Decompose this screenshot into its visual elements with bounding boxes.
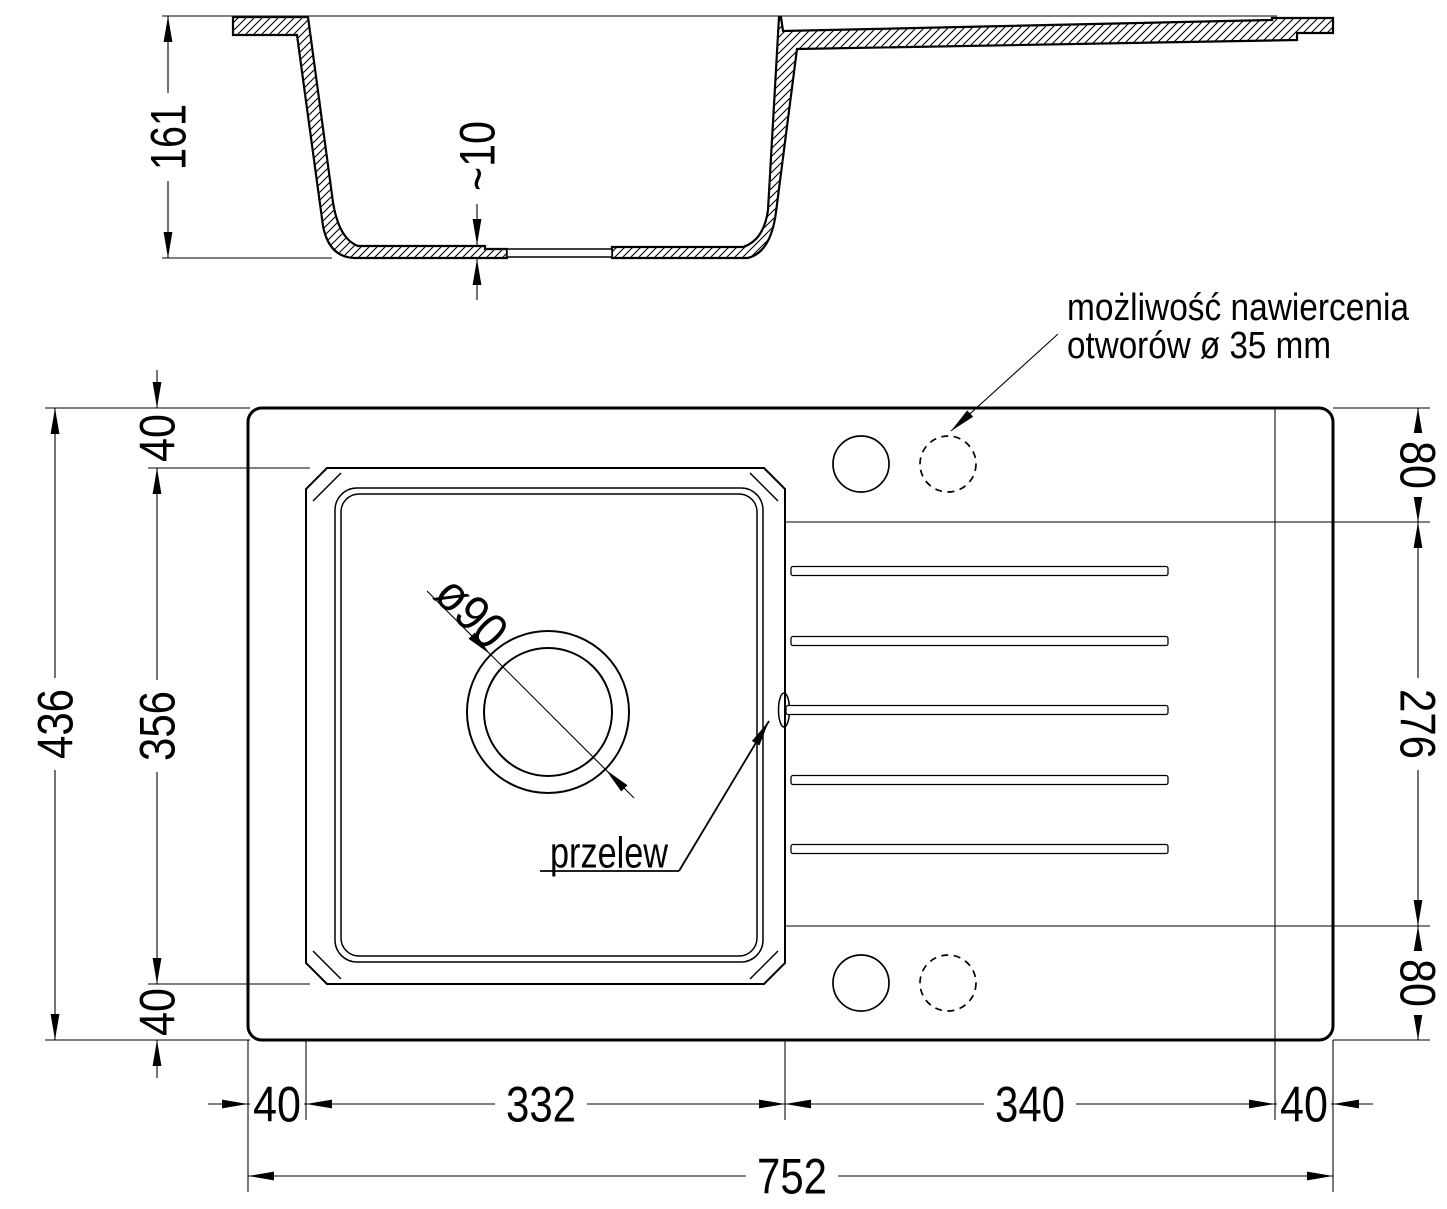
tap-hole-bottom bbox=[833, 955, 889, 1011]
dim-drain: ø90 bbox=[424, 565, 519, 660]
sink-technical-drawing: 161 ~10 bbox=[0, 0, 1447, 1209]
bowl-width-label: 332 bbox=[506, 1077, 576, 1133]
groove-1 bbox=[791, 567, 1168, 576]
drainboard-depth-label: 276 bbox=[1390, 689, 1446, 759]
drain-dim-arrow-2 bbox=[606, 770, 634, 798]
sink-outline bbox=[248, 408, 1333, 1040]
bowl-rim-inner-1 bbox=[335, 488, 763, 962]
groove-3 bbox=[786, 706, 1168, 715]
edge-bottom-label: 40 bbox=[130, 988, 186, 1036]
strip-top-label: 80 bbox=[1390, 441, 1446, 489]
tap-hole-top bbox=[833, 436, 889, 492]
plan-view: ø90 przelew możliwość nawiercenia otworó… bbox=[28, 287, 1446, 1205]
dim-edge-left: 40 bbox=[250, 1077, 304, 1133]
bowl-rim-inner-2 bbox=[341, 494, 757, 956]
dim-drainboard-depth: 276 bbox=[1390, 678, 1446, 770]
dim-strip-top: 80 bbox=[1390, 433, 1446, 497]
groove-2 bbox=[791, 637, 1168, 646]
drill-note-leader bbox=[951, 334, 1058, 431]
edge-left-label: 40 bbox=[253, 1077, 301, 1133]
section-floor-thickness-label: ~10 bbox=[450, 121, 506, 191]
width-total-label: 752 bbox=[757, 1149, 827, 1205]
dim-161: 161 bbox=[141, 93, 197, 181]
drainboard-width-label: 340 bbox=[995, 1077, 1065, 1133]
dim-edge-top: 40 bbox=[130, 414, 186, 462]
dim-width-total: 752 bbox=[746, 1149, 838, 1205]
bowl-outer-outline bbox=[306, 468, 785, 984]
dim-edge-bottom: 40 bbox=[130, 988, 186, 1036]
dim-edge-right: 40 bbox=[1277, 1077, 1331, 1133]
dim-floor-thickness: ~10 bbox=[450, 121, 506, 191]
overflow-leader-arrow bbox=[679, 721, 769, 871]
section-drain-recess bbox=[507, 249, 612, 257]
groove-4 bbox=[791, 776, 1168, 785]
dim-depth-total: 436 bbox=[28, 678, 84, 770]
drain-diameter-label: ø90 bbox=[424, 565, 519, 660]
drill-note-line2: otworów ø 35 mm bbox=[1067, 325, 1331, 367]
technical-drawing-page: 161 ~10 bbox=[0, 0, 1447, 1209]
edge-right-label: 40 bbox=[1280, 1077, 1328, 1133]
optional-hole-bottom bbox=[920, 955, 976, 1011]
dim-bowl-depth: 356 bbox=[130, 680, 186, 772]
depth-total-label: 436 bbox=[28, 689, 84, 759]
edge-top-label: 40 bbox=[130, 414, 186, 462]
dim-bowl-width: 332 bbox=[495, 1077, 587, 1133]
drain-dim-line bbox=[490, 654, 606, 770]
section-drainboard-slab bbox=[612, 17, 1333, 258]
overflow-label: przelew bbox=[550, 828, 668, 877]
dim-drainboard-width: 340 bbox=[984, 1077, 1076, 1133]
bowl-depth-label: 356 bbox=[130, 691, 186, 761]
optional-hole-top bbox=[920, 436, 976, 492]
dim-strip-bottom: 80 bbox=[1390, 951, 1446, 1015]
strip-bottom-label: 80 bbox=[1390, 959, 1446, 1007]
bowl-corner-facets bbox=[313, 473, 778, 979]
drainboard-grooves bbox=[786, 567, 1168, 854]
groove-5 bbox=[791, 845, 1168, 854]
section-view: 161 ~10 bbox=[141, 16, 1334, 300]
drill-note-line1: możliwość nawiercenia bbox=[1067, 287, 1410, 329]
section-height-label: 161 bbox=[141, 104, 197, 170]
